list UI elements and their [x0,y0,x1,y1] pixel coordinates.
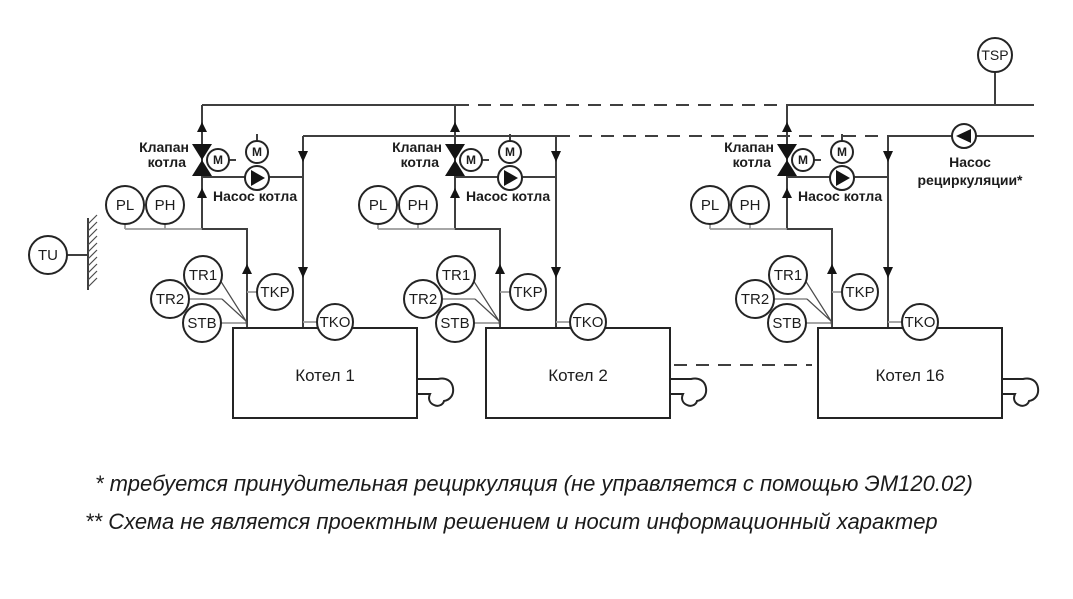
tu-sensor-label: TU [38,247,58,264]
valve-label-line1: Клапан [724,139,774,155]
supply-riser-pipe [202,105,247,328]
pl-sensor-label: PL [369,197,387,214]
recirculation-pump-label-line2: рециркуляции* [917,172,1023,188]
burner-icon [417,378,453,405]
stb-sensor-label: STB [440,315,469,332]
recirculation-pump-icon [952,124,976,148]
valve-motor-label: M [798,153,808,167]
boiler-pump-label: Насос котла [466,188,550,204]
supply-sensor-assembly: TSP [978,38,1012,105]
pump-motor-label: M [505,145,515,159]
sensor-leader-lines [220,280,247,328]
recirculation-pump-assembly: Насос рециркуляции* [917,124,1023,188]
boiler-name: Котел 16 [875,366,944,385]
boiler-plant-schematic: TU TSP Насос рециркуляции* [0,0,1073,599]
burner-icon [1002,378,1038,405]
tr1-sensor-label: TR1 [189,267,217,284]
ph-sensor-label: PH [740,197,761,214]
pl-sensor-label: PL [701,197,719,214]
sensor-leader-lines [473,280,500,328]
boiler-pump-icon [830,166,854,190]
tko-sensor-label: TKO [320,314,351,331]
tsp-sensor-label: TSP [981,47,1008,63]
recirculation-pump-label-line1: Насос [949,154,991,170]
footnote-1: * требуется принудительная рециркуляция … [95,471,973,496]
burner-icon [670,378,706,405]
footnote-2: ** Схема не является проектным решением … [85,509,938,534]
boiler-pump-icon [245,166,269,190]
wall-hatch-icon [88,215,97,287]
valve-label-line2: котла [401,154,440,170]
tr2-sensor-label: TR2 [409,291,437,308]
boiler-pump-label: Насос котла [798,188,882,204]
tko-sensor-label: TKO [905,314,936,331]
valve-label-line2: котла [148,154,187,170]
stb-sensor-label: STB [187,315,216,332]
ph-sensor-label: PH [408,197,429,214]
tkp-sensor-label: TKP [513,284,542,301]
valve-motor-label: M [213,153,223,167]
tko-sensor-label: TKO [573,314,604,331]
tr2-sensor-label: TR2 [156,291,184,308]
ph-sensor-label: PH [155,197,176,214]
boiler-name: Котел 2 [548,366,608,385]
boiler-pump-label: Насос котла [213,188,297,204]
valve-label-line1: Клапан [139,139,189,155]
tr1-sensor-label: TR1 [774,267,802,284]
valve-motor-label: M [466,153,476,167]
tr1-sensor-label: TR1 [442,267,470,284]
tkp-sensor-label: TKP [260,284,289,301]
pl-sensor-label: PL [116,197,134,214]
tkp-sensor-label: TKP [845,284,874,301]
outdoor-sensor-assembly: TU [29,215,97,290]
valve-label-line2: котла [733,154,772,170]
boiler-pump-icon [498,166,522,190]
valve-label-line1: Клапан [392,139,442,155]
supply-riser-pipe [455,105,500,328]
sensor-leader-lines [805,280,832,328]
tr2-sensor-label: TR2 [741,291,769,308]
stb-sensor-label: STB [772,315,801,332]
pump-motor-label: M [252,145,262,159]
pump-motor-label: M [837,145,847,159]
boiler-name: Котел 1 [295,366,355,385]
boiler-group-3: M M PL PH TR1 TR2 STB TKP TKO Клапан кот… [691,105,1038,418]
supply-riser-pipe [787,105,832,328]
